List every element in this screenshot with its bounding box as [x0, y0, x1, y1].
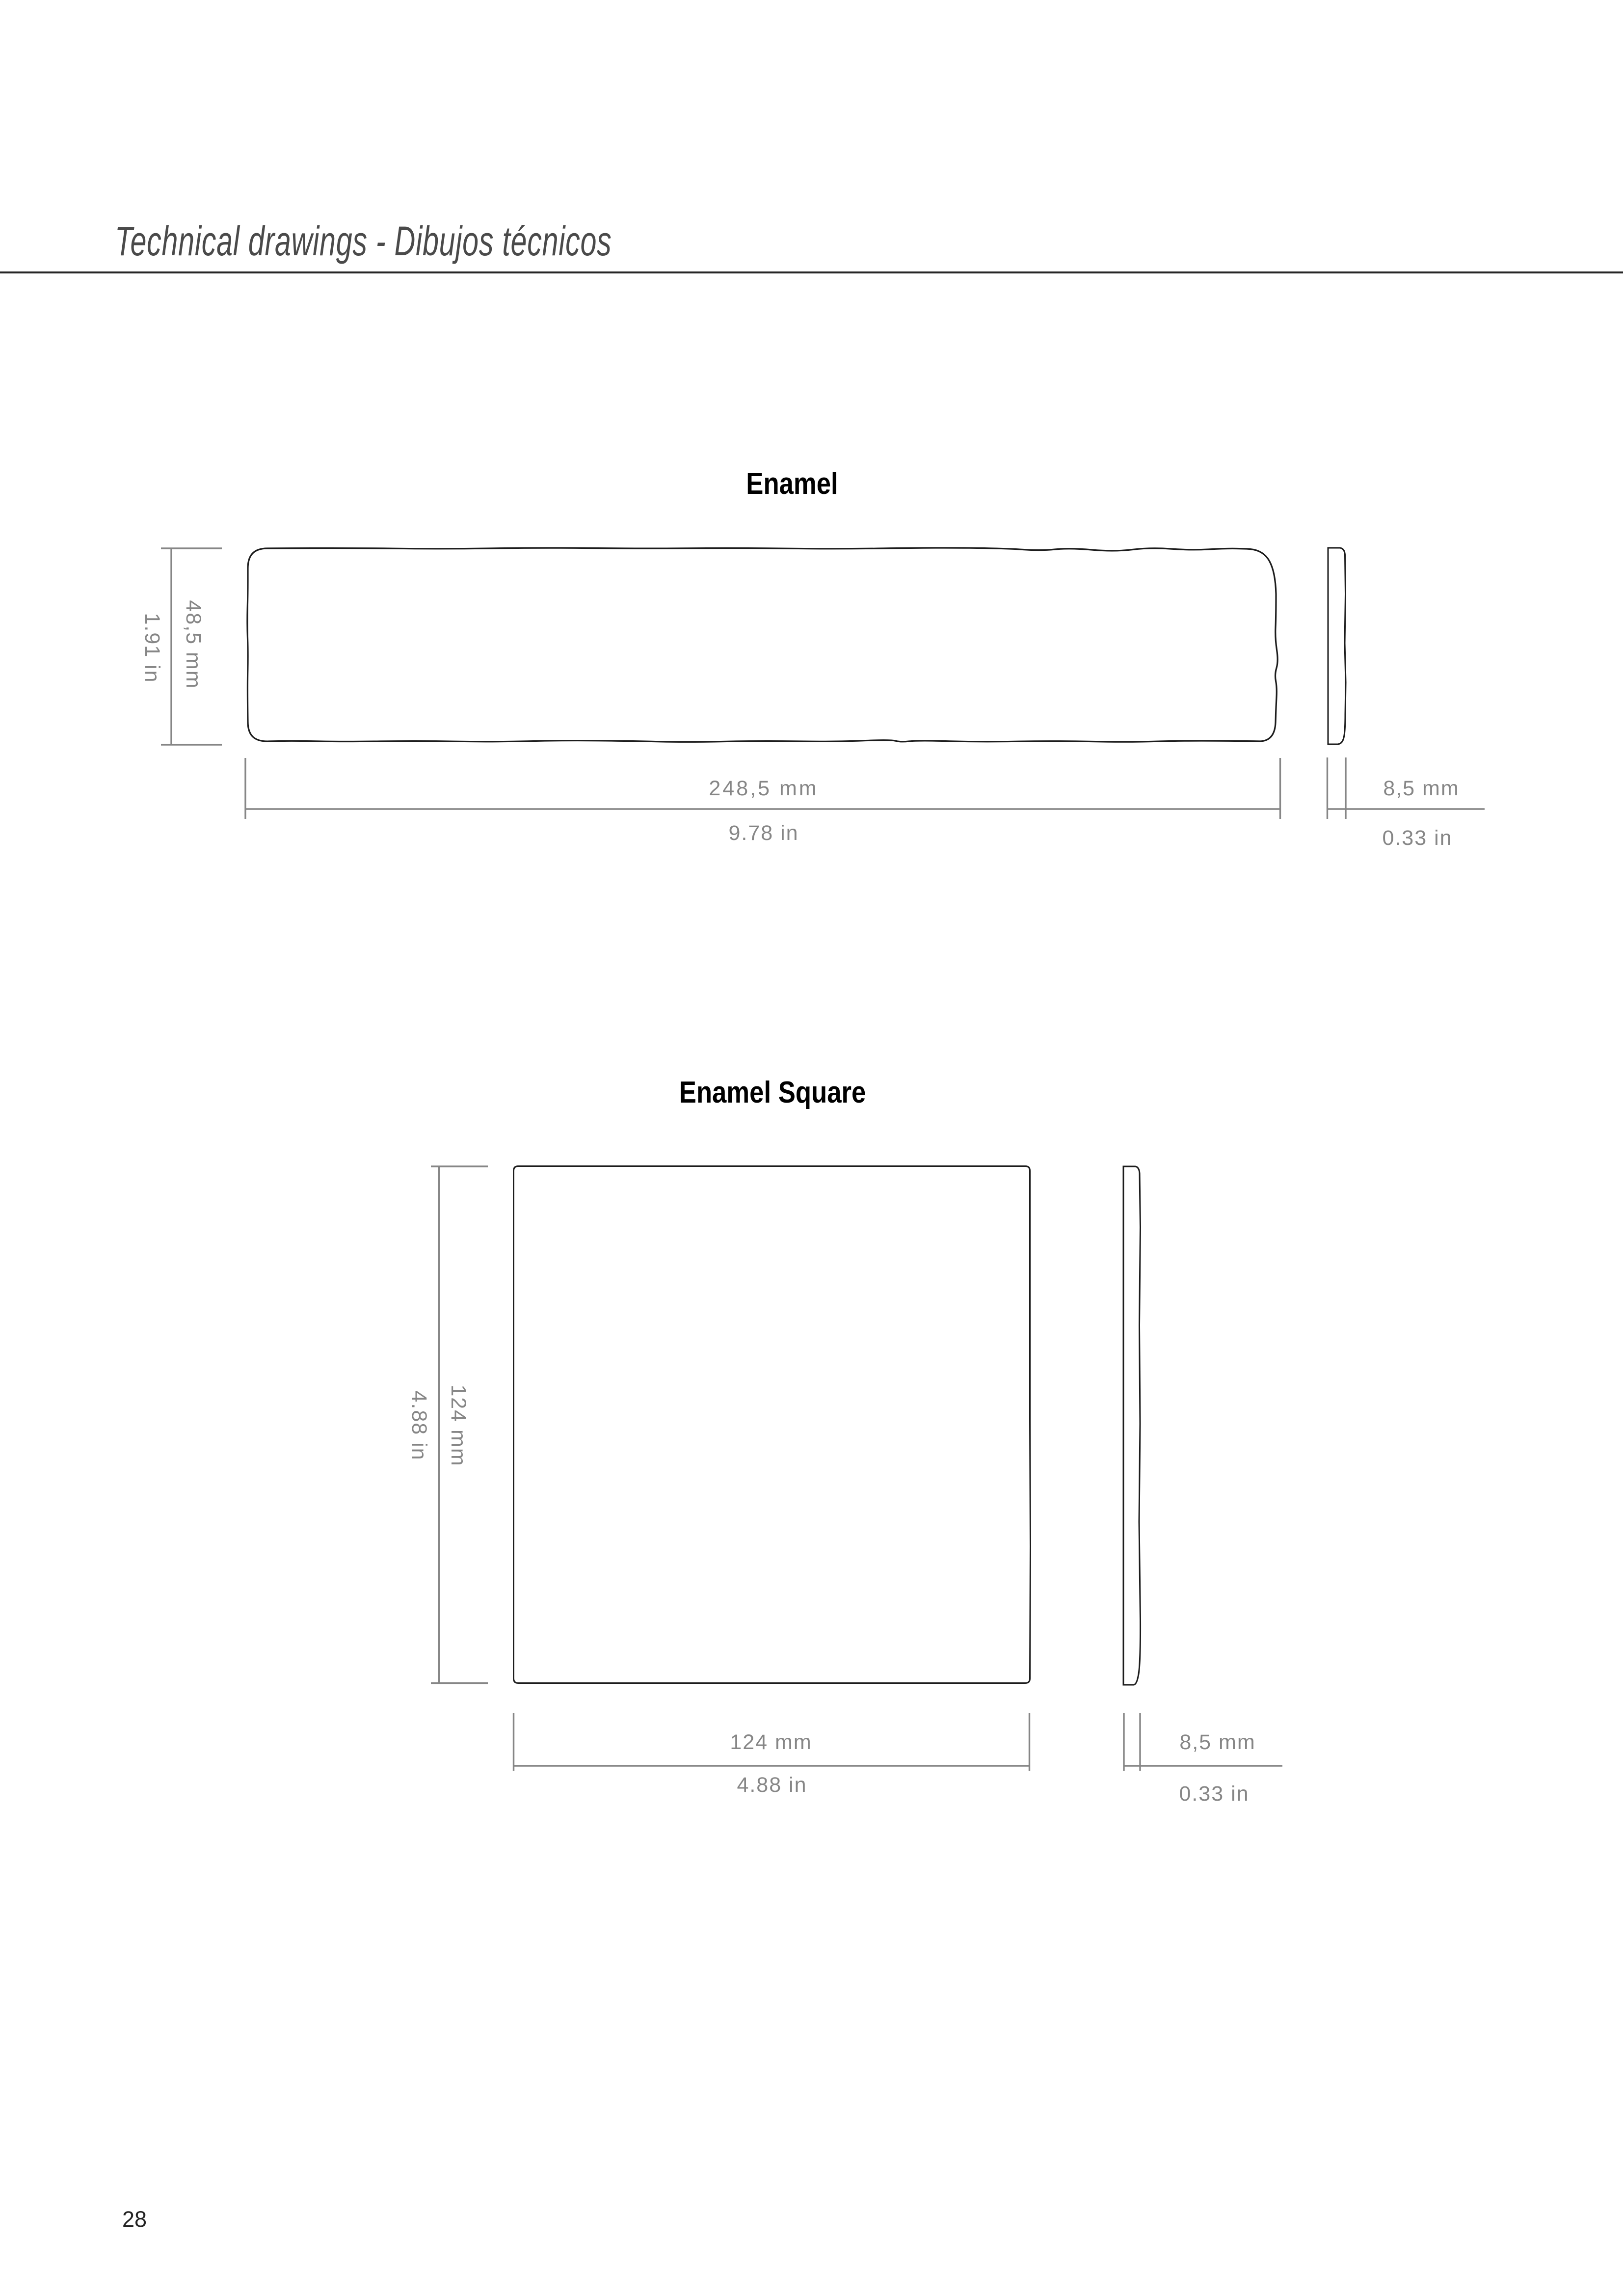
svg-text:124 mm: 124 mm [447, 1384, 470, 1466]
svg-text:124 mm: 124 mm [730, 1730, 812, 1754]
svg-text:9.78 in: 9.78 in [728, 821, 798, 845]
svg-text:Technical drawings - Dibujos t: Technical drawings - Dibujos técnicos [115, 218, 612, 265]
svg-text:Enamel: Enamel [746, 467, 838, 501]
svg-text:Enamel Square: Enamel Square [679, 1076, 866, 1109]
svg-text:4.88 in: 4.88 in [407, 1390, 431, 1460]
svg-text:248,5 mm: 248,5 mm [709, 777, 818, 800]
svg-text:0.33 in: 0.33 in [1382, 826, 1452, 850]
svg-text:0.33 in: 0.33 in [1179, 1782, 1249, 1806]
svg-text:1.91 in: 1.91 in [140, 613, 164, 683]
svg-text:48,5 mm: 48,5 mm [182, 600, 205, 689]
svg-text:4.88 in: 4.88 in [737, 1773, 807, 1797]
svg-text:8,5 mm: 8,5 mm [1179, 1730, 1255, 1754]
svg-text:8,5 mm: 8,5 mm [1383, 777, 1459, 800]
svg-text:28: 28 [122, 2207, 147, 2232]
